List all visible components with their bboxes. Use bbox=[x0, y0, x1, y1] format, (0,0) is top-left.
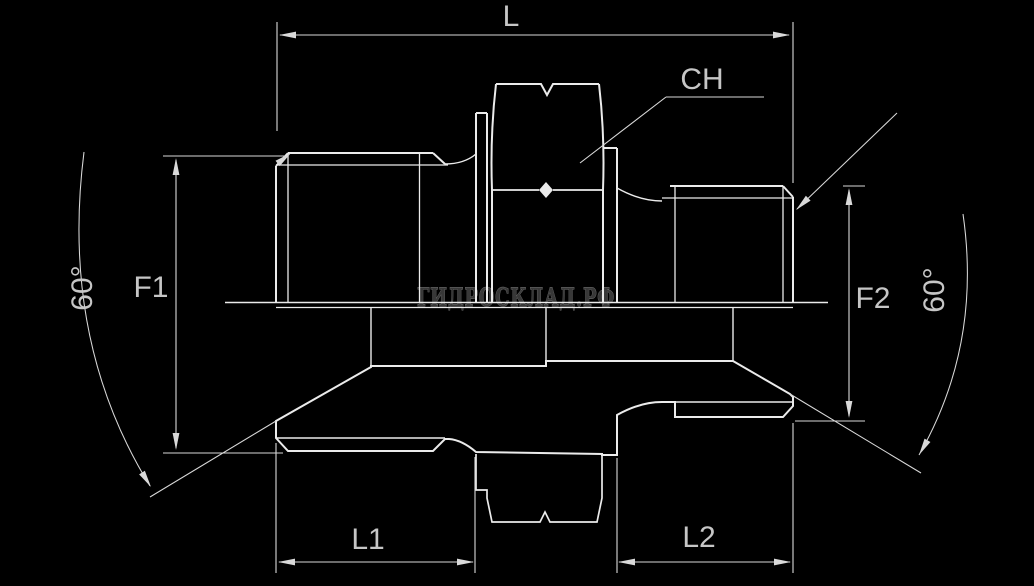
dimension-label-f2: F2 bbox=[855, 282, 890, 315]
angle-label-right: 60° bbox=[918, 267, 951, 312]
dimension-label-l: L bbox=[503, 0, 520, 33]
fitting-outline bbox=[225, 84, 828, 308]
dimension-f1: F1 bbox=[133, 150, 293, 453]
dimension-l1: L1 bbox=[276, 443, 475, 573]
drawing-canvas: ГИДРОСКЛАД.РФ bbox=[0, 0, 1034, 586]
technical-drawing: ГИДРОСКЛАД.РФ bbox=[0, 0, 1034, 586]
section-hatch bbox=[276, 308, 793, 522]
angle-construction-left bbox=[79, 152, 276, 497]
dimension-l2: L2 bbox=[617, 423, 793, 573]
dimension-label-l2: L2 bbox=[682, 521, 715, 554]
dimension-label-ch: CH bbox=[680, 63, 723, 96]
dimension-label-l1: L1 bbox=[351, 523, 384, 556]
dimension-f2: F2 bbox=[795, 186, 891, 421]
hex-chamfer-diamond bbox=[539, 182, 553, 198]
angle-label-left: 60° bbox=[66, 265, 99, 310]
dimension-label-f1: F1 bbox=[133, 271, 168, 304]
